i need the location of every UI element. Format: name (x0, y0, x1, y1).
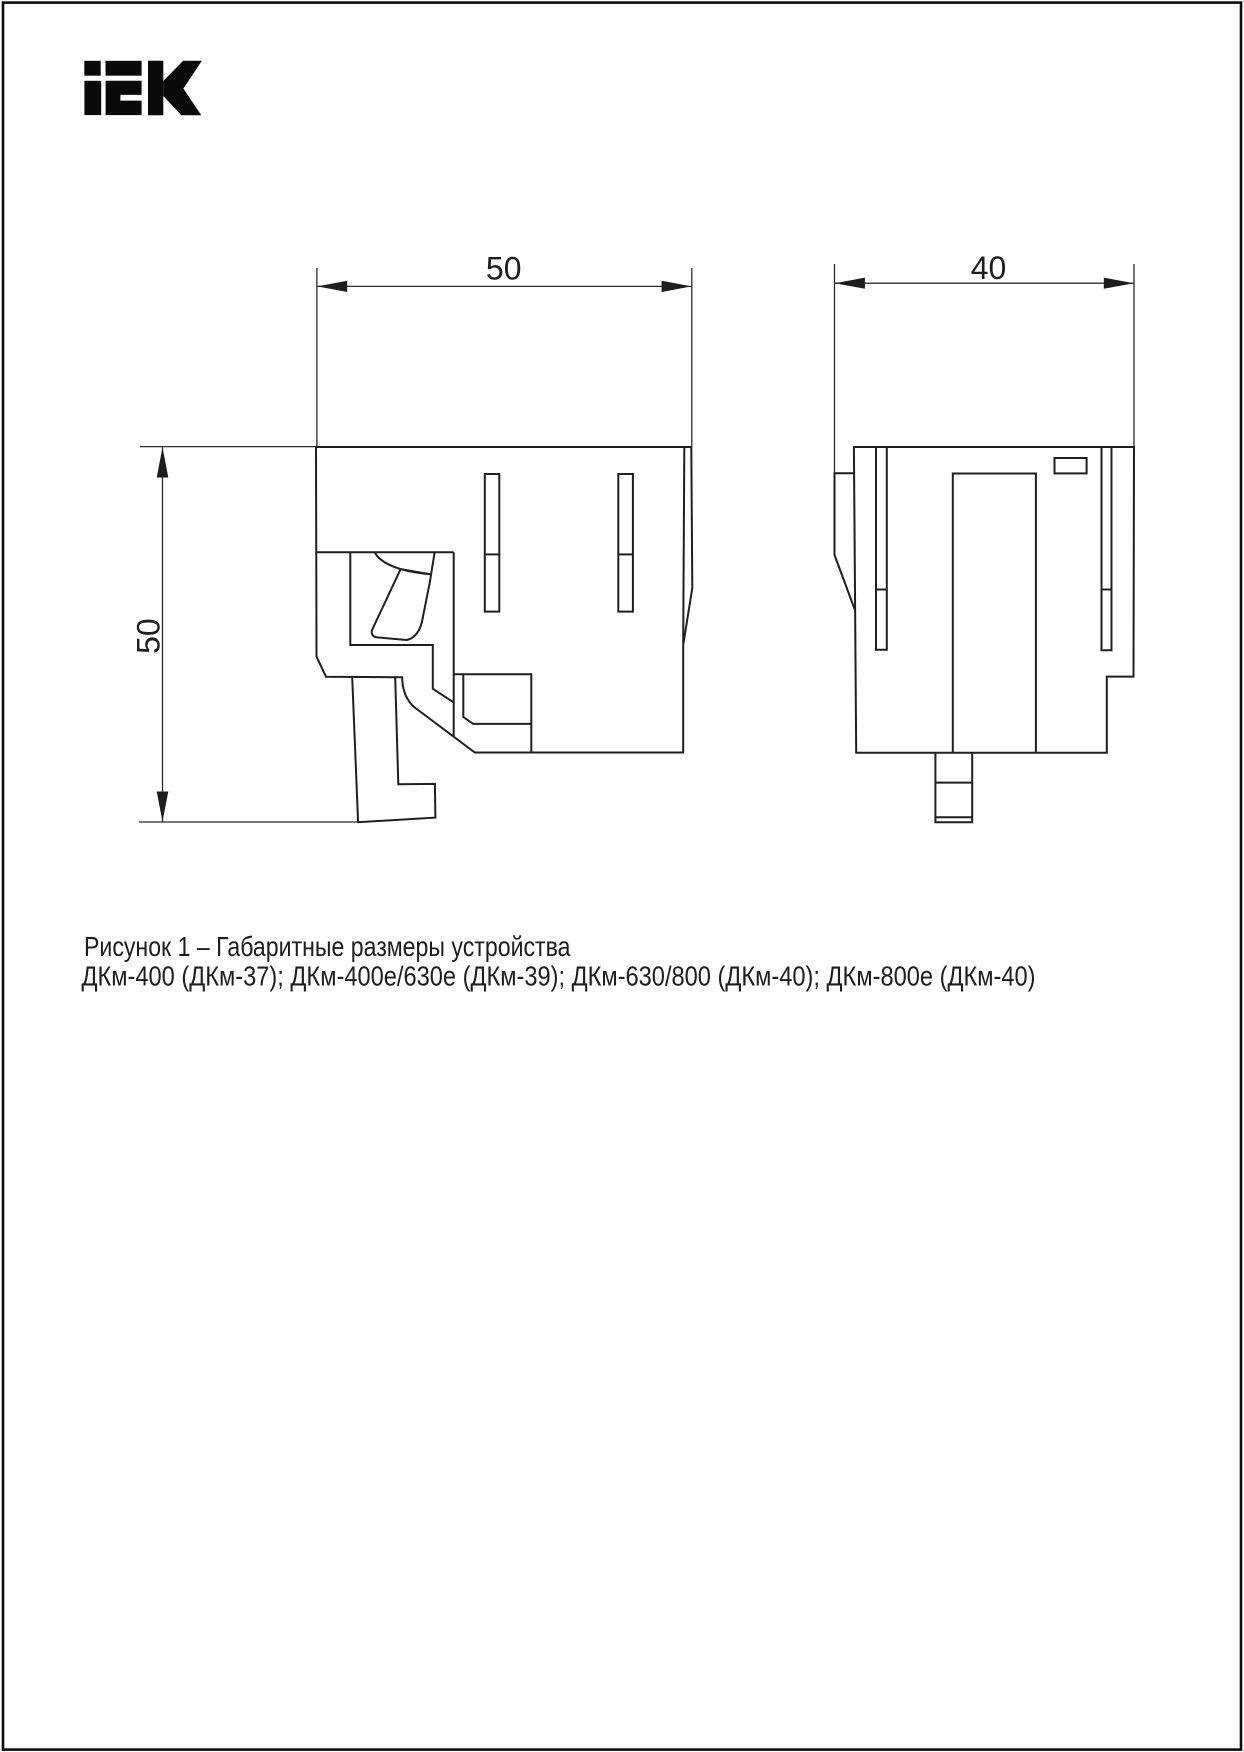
svg-text:ДКм-400 (ДКм-37); ДКм-400е/630: ДКм-400 (ДКм-37); ДКм-400е/630е (ДКм-39)… (82, 960, 1036, 991)
svg-text:40: 40 (971, 250, 1007, 286)
svg-text:50: 50 (486, 251, 522, 287)
svg-text:Рисунок 1 – Габаритные размеры: Рисунок 1 – Габаритные размеры устройств… (84, 931, 571, 962)
svg-text:50: 50 (130, 618, 166, 654)
